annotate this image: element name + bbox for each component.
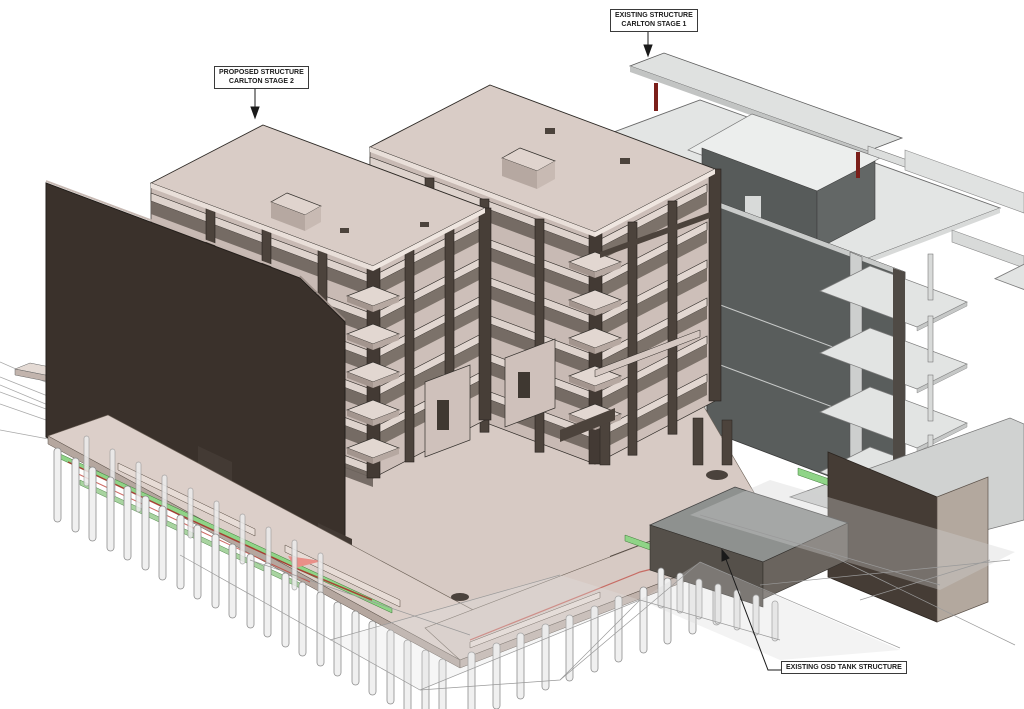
annotation-text-line: PROPOSED STRUCTURE xyxy=(219,68,304,77)
annotation-osd-tank[interactable]: EXISTING OSD TANK STRUCTURE xyxy=(781,661,907,674)
annotation-proposed-structure[interactable]: PROPOSED STRUCTURE CARLTON STAGE 2 xyxy=(214,66,309,89)
red-column xyxy=(856,152,860,178)
red-column xyxy=(654,83,658,111)
annotation-text-line: CARLTON STAGE 1 xyxy=(615,20,693,29)
slab-opening xyxy=(451,593,469,601)
annotation-text-line: EXISTING OSD TANK STRUCTURE xyxy=(786,663,902,672)
annotation-text-line: CARLTON STAGE 2 xyxy=(219,77,304,86)
slab-opening xyxy=(706,470,728,480)
annotation-existing-structure[interactable]: EXISTING STRUCTURE CARLTON STAGE 1 xyxy=(610,9,698,32)
structural-model-canvas xyxy=(0,0,1024,709)
annotation-text-line: EXISTING STRUCTURE xyxy=(615,11,693,20)
model-3d-viewport[interactable]: PROPOSED STRUCTURE CARLTON STAGE 2 EXIST… xyxy=(0,0,1024,709)
